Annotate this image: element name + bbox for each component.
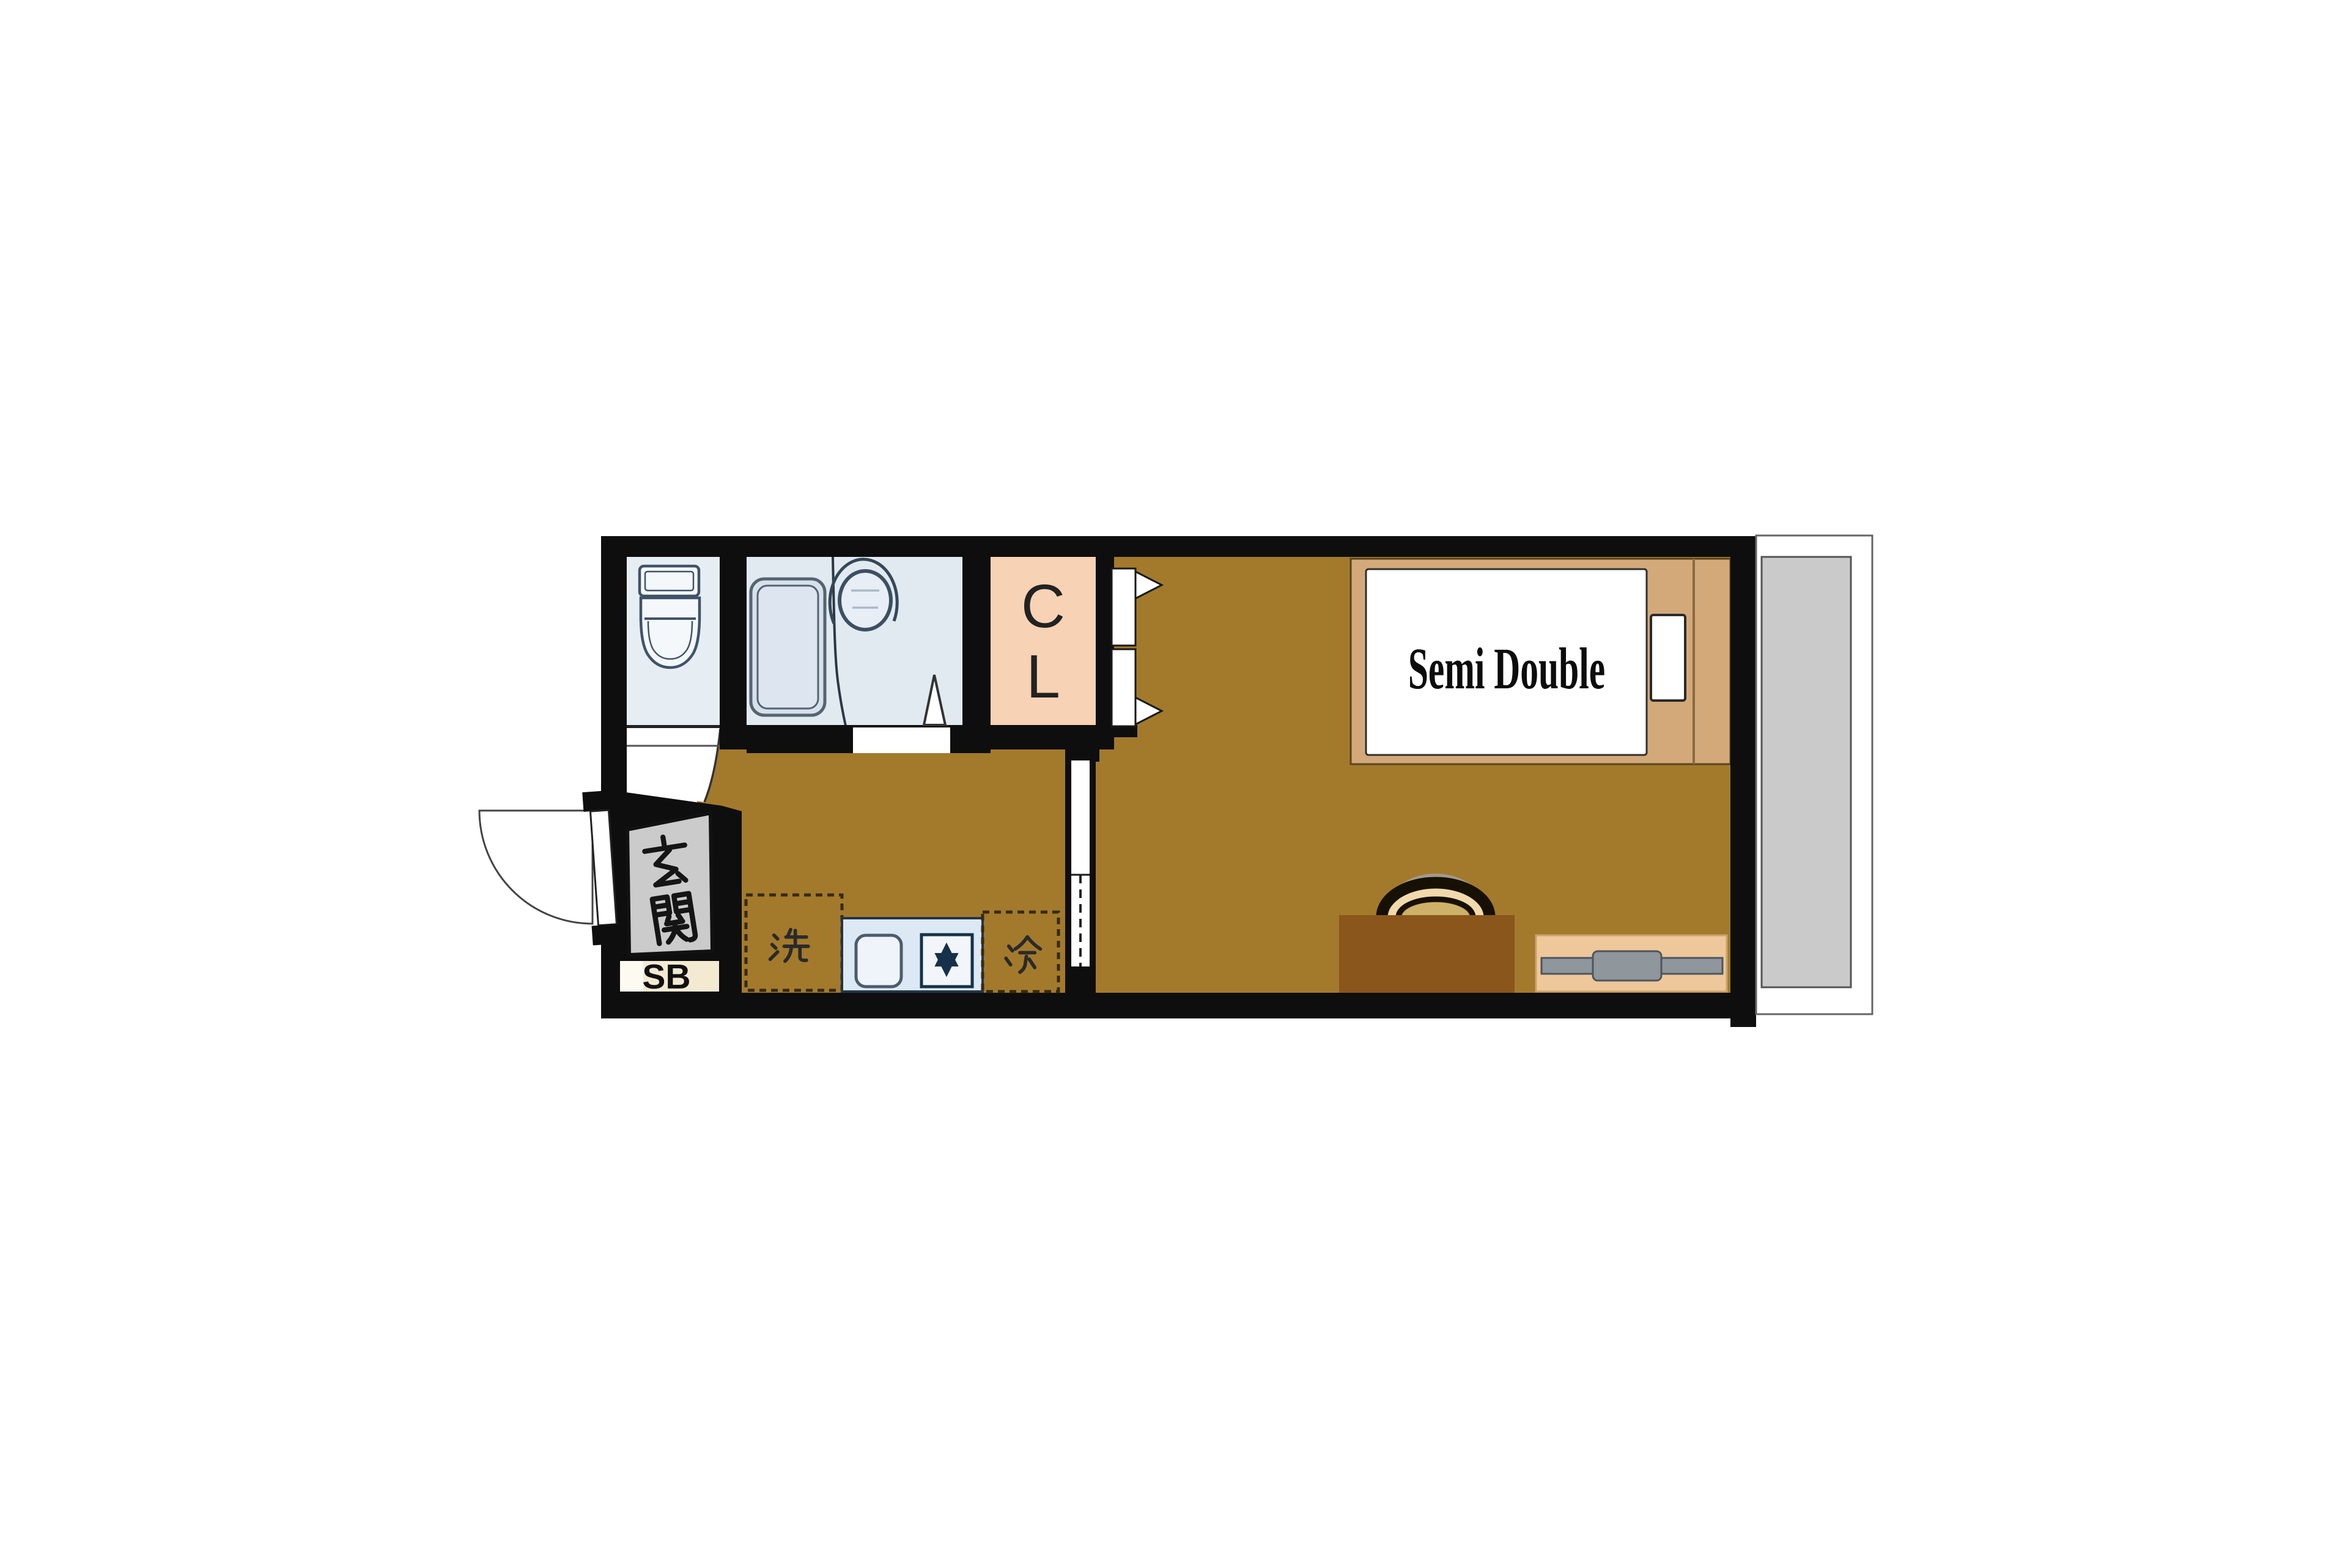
- svg-text:C: C: [1021, 572, 1065, 641]
- svg-text:Semi Double: Semi Double: [1408, 637, 1605, 702]
- svg-text:L: L: [1026, 642, 1060, 711]
- svg-text:SB: SB: [642, 957, 690, 996]
